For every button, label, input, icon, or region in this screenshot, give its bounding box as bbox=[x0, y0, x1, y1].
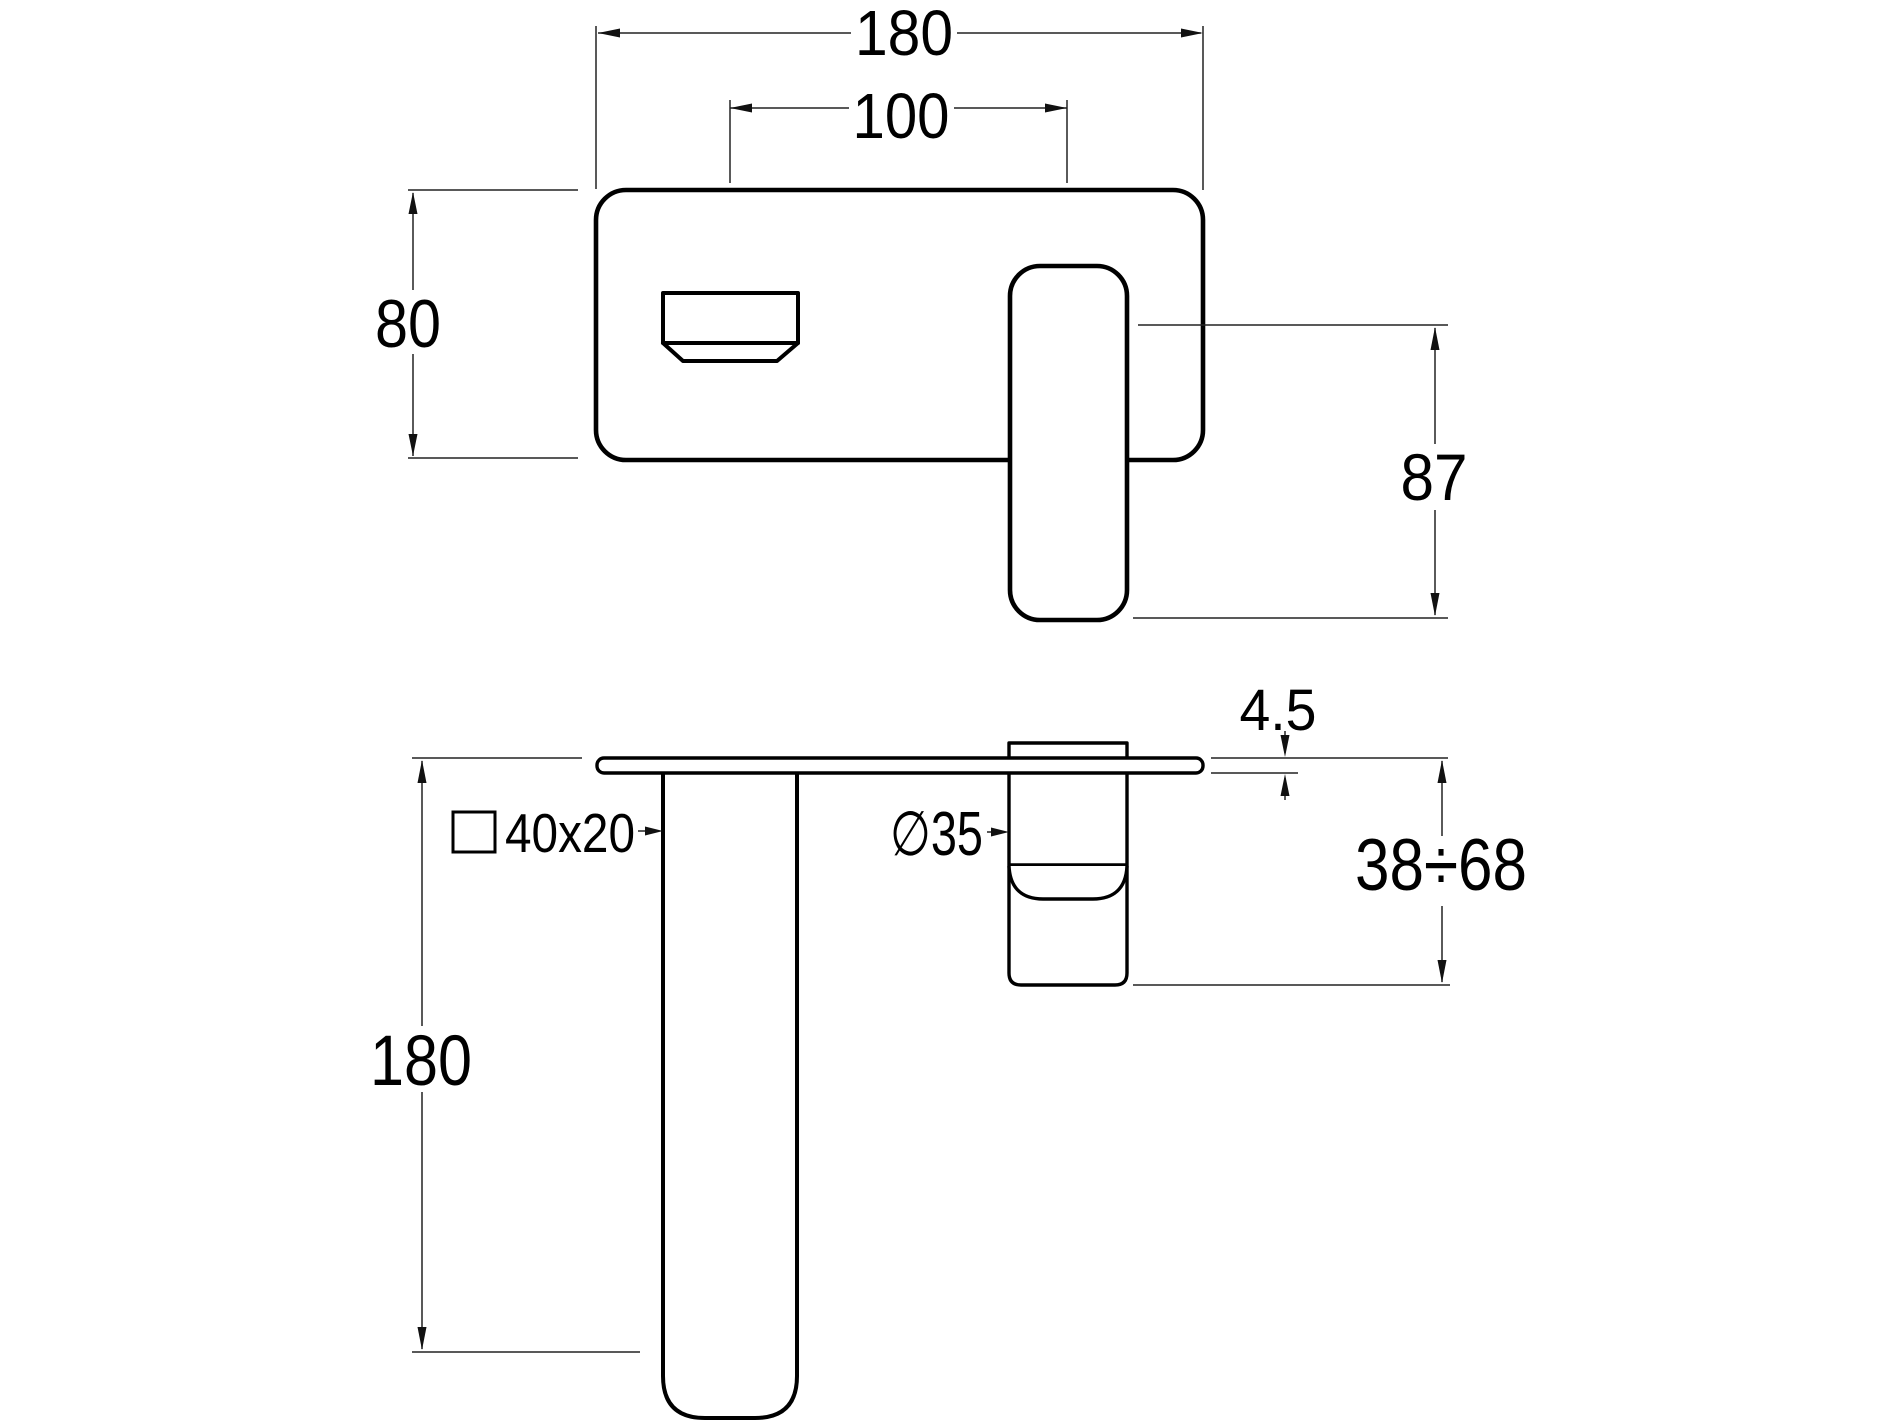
dim-centers: 100 bbox=[730, 80, 1067, 183]
arrow-up-icon bbox=[1281, 774, 1290, 796]
spout-tube-side bbox=[663, 774, 797, 1418]
dim-plate-height-label: 80 bbox=[375, 286, 441, 362]
arrow-up-icon bbox=[1438, 760, 1447, 783]
spout-section-label: 40x20 bbox=[505, 802, 635, 864]
dim-lever-height-label: 87 bbox=[1401, 440, 1468, 514]
dim-plate-width-label: 180 bbox=[855, 0, 953, 69]
dim-plate-height: 80 bbox=[375, 190, 578, 458]
arrow-down-icon bbox=[1431, 593, 1440, 616]
arrow-left-icon bbox=[598, 29, 620, 38]
arrow-up-icon bbox=[418, 760, 427, 783]
arrow-up-icon bbox=[1431, 327, 1440, 350]
dim-plate-thickness: 4.5 bbox=[1211, 678, 1448, 800]
arrow-right-icon bbox=[1181, 29, 1203, 38]
dim-centers-label: 100 bbox=[853, 80, 950, 152]
dim-plate-thickness-label: 4.5 bbox=[1240, 678, 1317, 743]
spout-lip-front bbox=[663, 343, 798, 361]
arrow-right-icon bbox=[991, 828, 1009, 837]
square-section-symbol-icon bbox=[453, 812, 495, 852]
dim-recess-depth: 38÷68 bbox=[1133, 760, 1527, 985]
arrow-down-icon bbox=[1438, 960, 1447, 983]
dim-recess-depth-label: 38÷68 bbox=[1355, 825, 1527, 906]
arrow-up-icon bbox=[409, 192, 418, 214]
spout-outlet-front bbox=[663, 293, 798, 343]
label-cartridge-diameter: ∅35 bbox=[890, 800, 1009, 869]
arrow-down-icon bbox=[409, 434, 418, 456]
technical-drawing-canvas: 180 100 80 87 bbox=[0, 0, 1896, 1422]
cartridge-diameter-label: ∅35 bbox=[890, 800, 983, 869]
arrow-right-icon bbox=[1045, 104, 1067, 113]
cartridge-nut-curve bbox=[1009, 866, 1127, 899]
label-spout-section: 40x20 bbox=[453, 802, 663, 864]
dim-spout-reach-label: 180 bbox=[370, 1022, 472, 1101]
arrow-down-icon bbox=[418, 1327, 427, 1350]
arrow-right-icon bbox=[645, 827, 663, 836]
handle-lever-front bbox=[1010, 266, 1127, 620]
wall-plate-side bbox=[597, 758, 1203, 773]
arrow-left-icon bbox=[730, 104, 752, 113]
faucet-dimension-drawing: 180 100 80 87 bbox=[0, 0, 1896, 1422]
front-view bbox=[596, 190, 1203, 620]
